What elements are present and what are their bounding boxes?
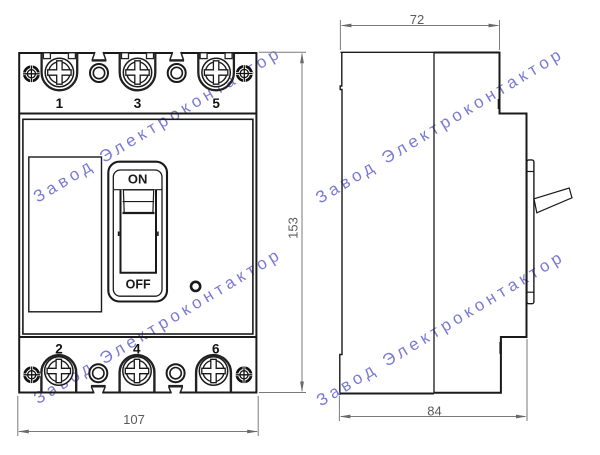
svg-text:2: 2 bbox=[55, 342, 63, 357]
svg-text:1: 1 bbox=[56, 96, 64, 111]
svg-text:ON: ON bbox=[128, 171, 148, 186]
svg-text:6: 6 bbox=[212, 342, 220, 357]
svg-text:OFF: OFF bbox=[126, 278, 151, 292]
svg-text:153: 153 bbox=[286, 217, 301, 239]
svg-text:72: 72 bbox=[410, 12, 424, 27]
svg-text:5: 5 bbox=[212, 96, 220, 111]
svg-text:4: 4 bbox=[133, 342, 141, 357]
svg-text:3: 3 bbox=[134, 96, 142, 111]
svg-text:107: 107 bbox=[123, 412, 145, 427]
svg-text:84: 84 bbox=[427, 404, 441, 419]
